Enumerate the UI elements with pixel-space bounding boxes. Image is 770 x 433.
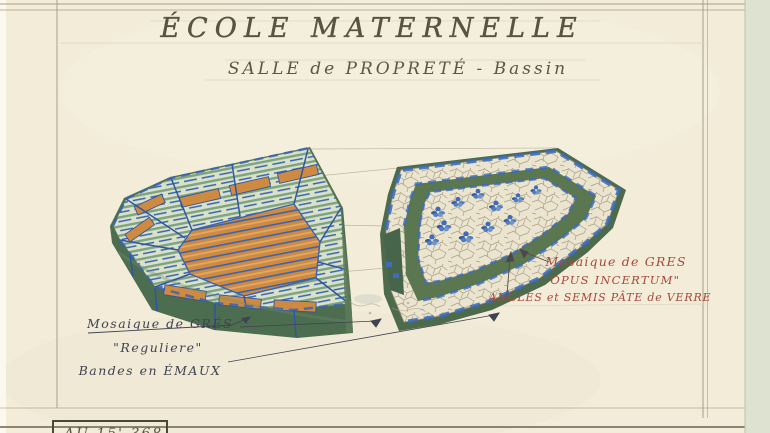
stamp-text: AU 15' 368 xyxy=(62,426,163,433)
annotation-left-line1: Mosaique de GRÉS xyxy=(86,316,233,331)
annotation-left-line2: "Reguliere" xyxy=(113,340,203,355)
annotation-right-line1: Mosaique de GRES xyxy=(544,254,686,269)
annotation-right-line3: ANGLES et SEMIS PÂTE de VERRE xyxy=(488,290,712,304)
wash-smudge xyxy=(354,294,382,304)
drawing-canvas: ÉCOLE MATERNELLE SALLE de PROPRETÉ - Bas… xyxy=(0,0,770,433)
annotation-right-line2: "OPUS INCERTUM" xyxy=(544,273,680,287)
scan-edge-left xyxy=(0,0,6,433)
page-subtitle: SALLE de PROPRETÉ - Bassin xyxy=(228,58,568,79)
annotation-left-line3: Bandes en ÉMAUX xyxy=(78,363,222,378)
page-title: ÉCOLE MATERNELLE xyxy=(159,11,583,44)
scan-edge-right xyxy=(745,0,770,433)
drawing-sheet: ÉCOLE MATERNELLE SALLE de PROPRETÉ - Bas… xyxy=(0,0,770,433)
